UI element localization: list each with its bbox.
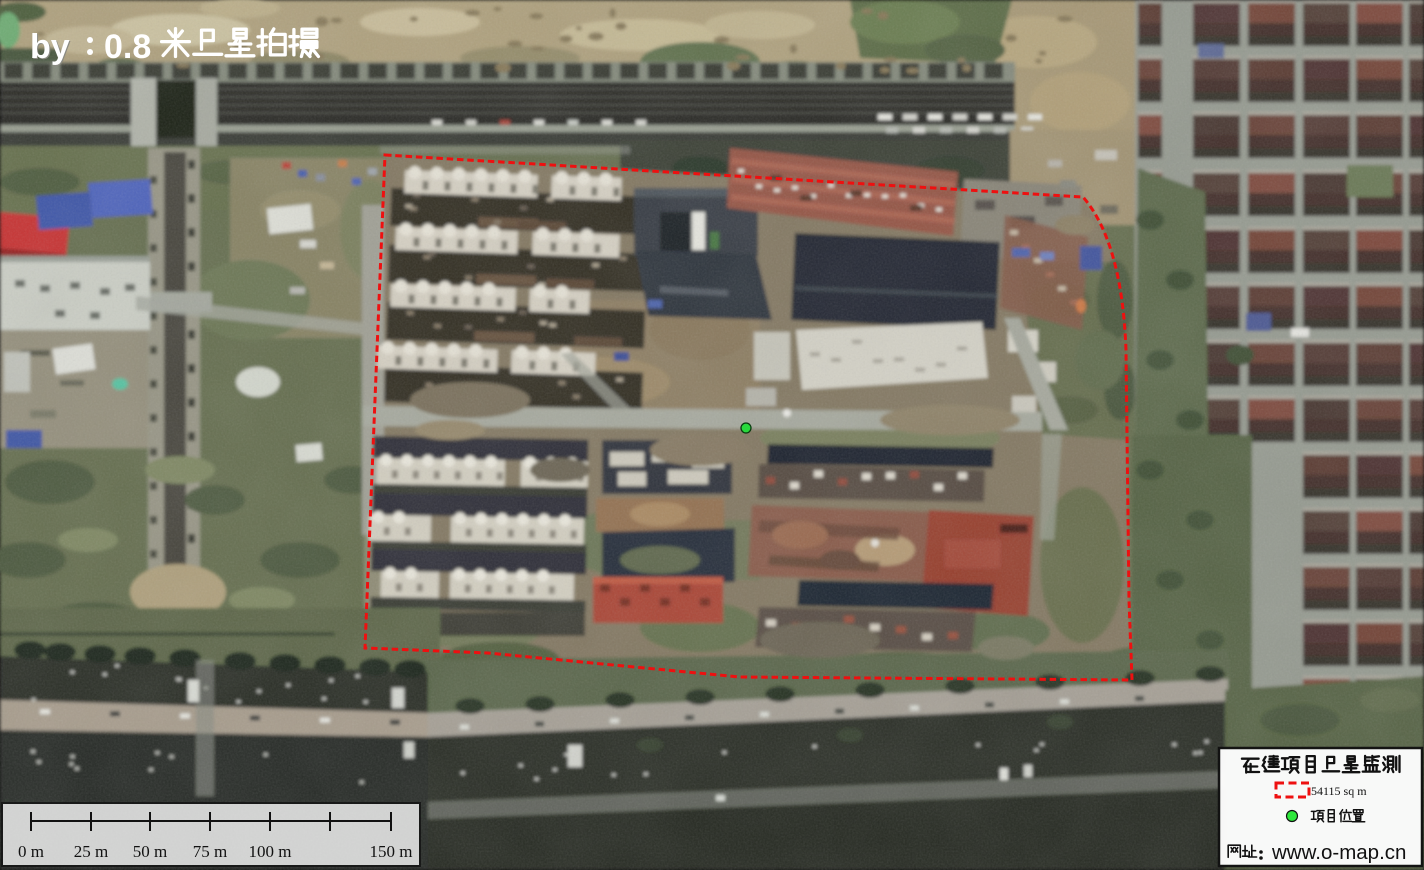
svg-text:www.o-map.cn: www.o-map.cn xyxy=(1271,841,1406,864)
svg-text:25 m: 25 m xyxy=(74,842,108,861)
svg-text:150 m: 150 m xyxy=(370,842,413,861)
svg-text:100 m: 100 m xyxy=(249,842,292,861)
svg-text:75 m: 75 m xyxy=(193,842,227,861)
svg-text:50 m: 50 m xyxy=(133,842,167,861)
svg-text:0 m: 0 m xyxy=(18,842,44,861)
svg-text:0.8: 0.8 xyxy=(104,28,151,66)
svg-text:by: by xyxy=(30,28,70,66)
svg-text:54115 sq m: 54115 sq m xyxy=(1311,784,1367,798)
